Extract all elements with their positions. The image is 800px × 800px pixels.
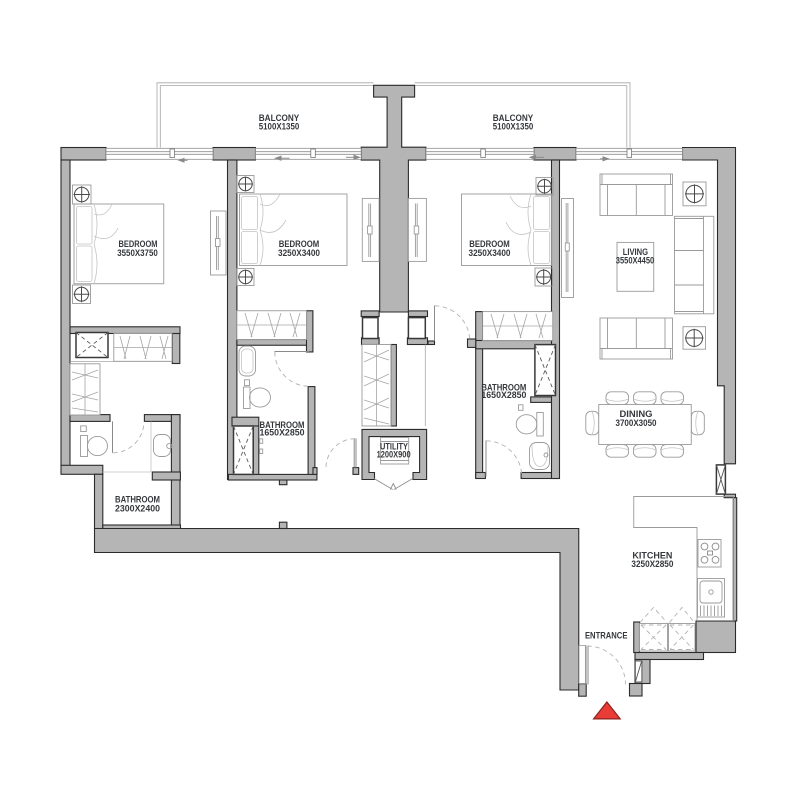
svg-text:3250X3400: 3250X3400	[469, 248, 511, 258]
svg-text:3550X4450: 3550X4450	[616, 256, 654, 266]
svg-text:ENTRANCE: ENTRANCE	[585, 631, 628, 641]
svg-text:5100X1350: 5100X1350	[493, 122, 534, 132]
svg-text:3700X3050: 3700X3050	[616, 418, 657, 428]
svg-text:1650X2850: 1650X2850	[260, 427, 305, 437]
svg-text:2300X2400: 2300X2400	[115, 504, 160, 514]
svg-text:5100X1350: 5100X1350	[259, 122, 300, 132]
svg-text:3250X2850: 3250X2850	[631, 559, 673, 569]
svg-text:3550X3750: 3550X3750	[117, 248, 158, 258]
svg-text:3250X3400: 3250X3400	[278, 248, 320, 258]
svg-text:1200X900: 1200X900	[377, 450, 411, 460]
svg-text:1650X2850: 1650X2850	[481, 390, 526, 400]
